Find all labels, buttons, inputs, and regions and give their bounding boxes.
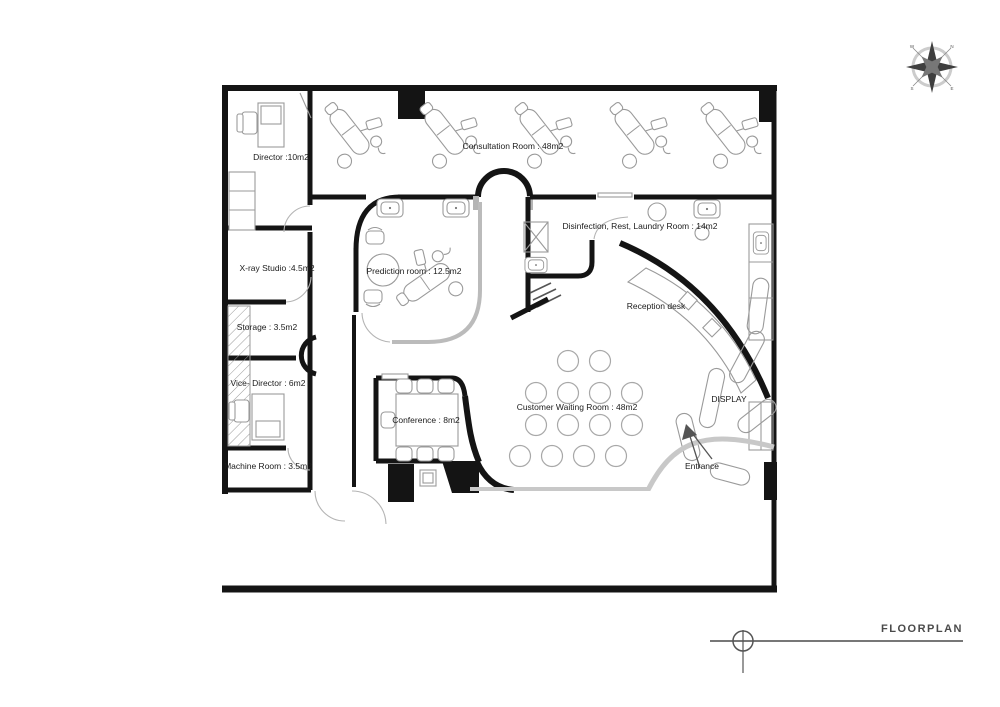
- label-xray: X-ray Studio :4.5m2: [239, 263, 314, 273]
- stool: [366, 228, 384, 245]
- chair: [417, 447, 433, 461]
- sink: [377, 199, 403, 217]
- compass-letter: N: [950, 44, 953, 49]
- director-sofa: [229, 172, 255, 230]
- label-conference: Conference : 8m2: [392, 415, 460, 425]
- door-arc-xray: [286, 277, 311, 302]
- compass-letter: E: [950, 86, 953, 91]
- door-leaf: [382, 374, 408, 379]
- sink: [753, 232, 768, 254]
- floorplan-page: Director :10m2 Consultation Room : 48m2 …: [0, 0, 1000, 707]
- reception-area: [620, 243, 768, 398]
- director-desk: [237, 103, 284, 147]
- chair: [417, 379, 433, 393]
- equipment-box: [420, 470, 436, 486]
- label-disinfection: Disinfection, Rest, Laundry Room : 14m2: [563, 221, 718, 231]
- arch-doorway: [478, 171, 530, 197]
- label-director: Director :10m2: [253, 152, 309, 162]
- label-machine-room: Machine Room : 3.5m2: [224, 461, 312, 471]
- label-waiting-room: Customer Waiting Room : 48m2: [517, 402, 638, 412]
- door-arc-prediction: [362, 313, 390, 342]
- dental-chair: [496, 85, 590, 181]
- drawing-title: FLOORPLAN: [881, 623, 963, 635]
- chair: [438, 379, 454, 393]
- pillar: [759, 86, 776, 122]
- sink: [694, 200, 720, 218]
- floorplan-drawing: Director :10m2 Consultation Room : 48m2 …: [0, 0, 1000, 707]
- entrance-area: [470, 424, 774, 490]
- label-storage: Storage : 3.5m2: [237, 322, 298, 332]
- compass-letter: W: [910, 44, 915, 49]
- dental-chair: [591, 85, 685, 181]
- compass-letter: S: [910, 86, 913, 91]
- door-arc-machine-room: [315, 491, 345, 521]
- disinfection-room: [511, 197, 773, 450]
- chair: [438, 447, 454, 461]
- door-leaf: [598, 193, 632, 197]
- stool: [364, 290, 382, 307]
- cabinet-run: [749, 224, 773, 340]
- stool-round: [648, 203, 666, 221]
- door-arc-corridor: [352, 491, 386, 524]
- compass-rose: N E S W: [906, 41, 958, 93]
- chair: [396, 379, 412, 393]
- label-reception-desk: Reception desk: [627, 301, 686, 311]
- sink: [443, 199, 469, 217]
- label-consultation: Consultation Room : 48m2: [463, 141, 564, 151]
- pillar: [388, 464, 414, 502]
- display-case: [746, 277, 770, 335]
- room-labels: Director :10m2 Consultation Room : 48m2 …: [224, 141, 747, 471]
- label-display: DISPLAY: [711, 394, 747, 404]
- sink: [525, 257, 547, 272]
- chair: [396, 447, 412, 461]
- pillar: [764, 462, 777, 500]
- label-entrance: Entrance: [685, 461, 719, 471]
- label-vice-director: Vice- Director : 6m2: [231, 378, 306, 388]
- title-block: FLOORPLAN: [710, 623, 963, 673]
- pillar: [398, 86, 425, 119]
- dental-chair: [306, 85, 400, 181]
- label-prediction: Prediction room : 12.5m2: [367, 266, 462, 276]
